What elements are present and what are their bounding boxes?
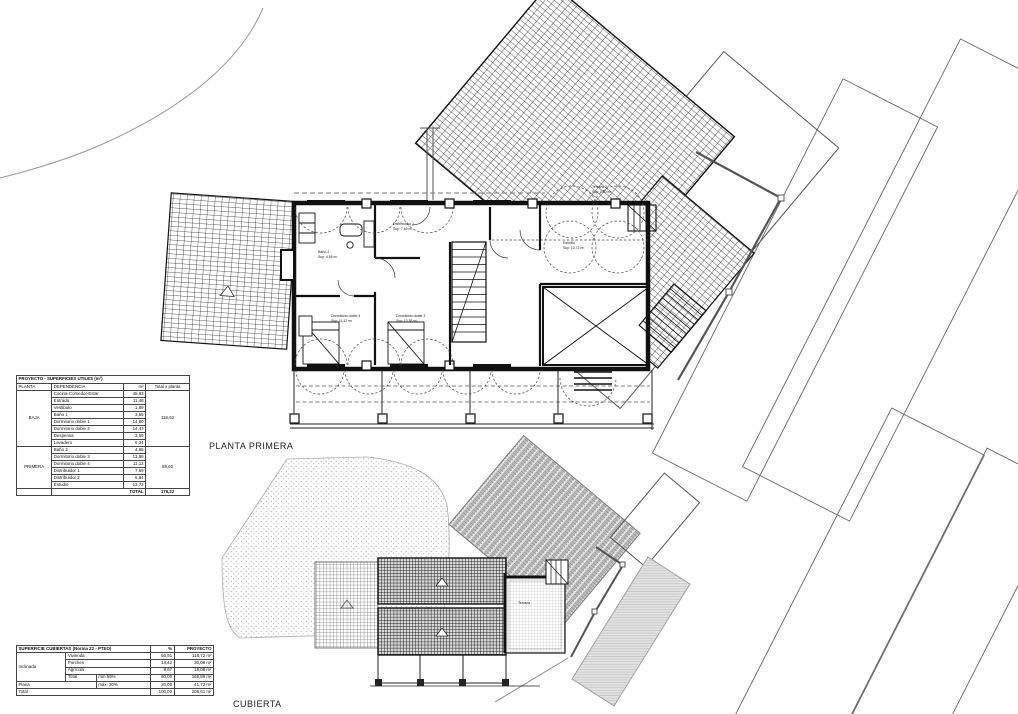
sub-cell: Vivienda (66, 653, 150, 660)
proy-cell: 166,89 m² (174, 674, 213, 681)
room-label-estudio: EstudioSup: 13,72 m² (563, 241, 584, 250)
windows-bottom (307, 364, 511, 369)
m2-cell: 11,48 (124, 398, 146, 405)
dependencia-cell: Dormitorio doble 1 (52, 419, 124, 426)
norma-cell: mín 55% (96, 674, 150, 681)
total-planta-cell: 116,62 (146, 391, 190, 447)
dependencia-cell: Despensa (52, 433, 124, 440)
m2-cell: 11,12 (124, 461, 146, 468)
total-label-cell: TOTAL (52, 489, 146, 496)
proy-cell: 208,61 m² (174, 689, 213, 696)
porch (290, 370, 654, 430)
dependencia-cell: Lavadero (52, 440, 124, 447)
room-label-terraza_cub: Terraza (518, 601, 530, 606)
table-title: PROYECTO - SUPERFICIES UTILES (m²) (17, 376, 190, 384)
room-stat: Sup: 7,69 m² (393, 227, 414, 231)
room-name: Dormitorio doble 3 (396, 314, 425, 319)
pct-cell: 100,00 (150, 689, 174, 696)
label-cubierta: CUBIERTA (233, 699, 282, 709)
room-label-dorm3: Dormitorio doble 3Sup: 13,58 m² (396, 314, 425, 323)
room-label-bano2: Baño 2Sup: 4,65 m² (318, 250, 337, 259)
sub-cell: Porches (66, 660, 150, 667)
tipo-cell: Inclinada (17, 653, 66, 682)
dependencia-cell: Entrada (52, 398, 124, 405)
proy-cell: 41,72 m² (174, 681, 213, 688)
dependencia-cell: Vestibulo (52, 405, 124, 412)
pct-cell: 56,91 (150, 653, 174, 660)
m2-cell: 5,34 (124, 440, 146, 447)
total-planta-cell: 59,60 (146, 447, 190, 489)
m2-cell: 3,59 (124, 433, 146, 440)
pct-cell: 20,00 (150, 681, 174, 688)
tipo-cell: Plana (17, 681, 97, 688)
neighbor-plot-outlines-bottom (710, 408, 1018, 714)
total-value-cell: 176,22 (146, 489, 190, 496)
table-superficies-utiles: PROYECTO - SUPERFICIES UTILES (m²)PLANTA… (16, 375, 190, 496)
norma-cell: máx. 20% (96, 681, 150, 688)
table-title: SUPERFICIE CUBIERTAS (Norma 22 - PTEO) (17, 646, 151, 653)
proy-cell: 118,72 m² (174, 653, 213, 660)
room-label-terraza2: Terraza 2Sup: 0,00 m² (592, 185, 611, 194)
room-label-dorm4: Dormitorio doble 4Sup: 11,12 m² (331, 314, 360, 323)
tipo-cell: Total (17, 689, 151, 696)
room-name: Dormitorio doble 4 (331, 314, 360, 319)
pct-cell: 8,67 (150, 667, 174, 674)
dependencia-cell: Dormitorio doble 2 (52, 426, 124, 433)
sub-cell: Total (66, 674, 96, 681)
m2-cell: 4,65 (124, 447, 146, 454)
dependencia-cell: Baño 1 (52, 412, 124, 419)
col-header: DEPENDENCIA (52, 384, 124, 391)
dependencia-cell: Dormitorio doble 3 (52, 454, 124, 461)
table-superficie-cubiertas: SUPERFICIE CUBIERTAS (Norma 22 - PTEO)%P… (16, 645, 214, 696)
col-header: PROYECTO (174, 646, 213, 653)
m2-cell: 5,84 (124, 475, 146, 482)
m2-cell: 14,43 (124, 426, 146, 433)
col-header: Total x planta (146, 384, 190, 391)
m2-cell: 1,89 (124, 405, 146, 412)
pct-cell: 80,00 (150, 674, 174, 681)
room-stat: Sup: 4,65 m² (318, 255, 337, 259)
plan-linework (0, 0, 1018, 714)
m2-cell: 14,80 (124, 419, 146, 426)
planta-cell: PRIMERA (17, 447, 52, 489)
pct-cell: 14,42 (150, 660, 174, 667)
drawing-sheet: PLANTA PRIMERA CUBIERTA Baño 2Sup: 4,65 … (0, 0, 1018, 714)
room-stat: Sup: 13,58 m² (396, 319, 425, 323)
roof-left (161, 193, 297, 349)
planta-primera-plan (281, 186, 706, 370)
empty-cell (17, 489, 52, 496)
roof-grey-left (315, 562, 378, 648)
sub-cell: Agrícola (66, 667, 150, 674)
m2-cell: 3,55 (124, 412, 146, 419)
col-header: PLANTA (17, 384, 52, 391)
room-stat: Sup: 0,00 m² (592, 190, 611, 194)
room-name: Terraza (518, 601, 530, 606)
planta-cell: BAJA (17, 391, 52, 447)
m2-cell: 45,93 (124, 391, 146, 398)
room-stat: Sup: 11,12 m² (331, 319, 360, 323)
dependencia-cell: Distribuidor 2 (52, 475, 124, 482)
m2-cell: 13,72 (124, 482, 146, 489)
dependencia-cell: Cocina-Comedor-Estar (52, 391, 124, 398)
windows-top (307, 200, 511, 205)
m2-cell: 7,69 (124, 468, 146, 475)
dependencia-cell: Estudio (52, 482, 124, 489)
col-header: % (150, 646, 174, 653)
site-boundary-curve (0, 8, 263, 178)
proy-cell: 30,08 m² (174, 660, 213, 667)
dependencia-cell: Baño 2 (52, 447, 124, 454)
room-label-distribuidor1: Distribuidor 1Sup: 7,69 m² (393, 222, 414, 231)
m2-cell: 13,58 (124, 454, 146, 461)
room-name: Distribuidor 1 (393, 222, 414, 227)
porch-cubierta (370, 655, 540, 686)
dependencia-cell: Dormitorio doble 4 (52, 461, 124, 468)
dependencia-cell: Distribuidor 1 (52, 468, 124, 475)
room-stat: Sup: 13,72 m² (563, 246, 584, 250)
porch-posts (290, 414, 652, 423)
proy-cell: 18,09 m² (174, 667, 213, 674)
col-header: m² (124, 384, 146, 391)
label-planta-primera: PLANTA PRIMERA (209, 441, 293, 451)
